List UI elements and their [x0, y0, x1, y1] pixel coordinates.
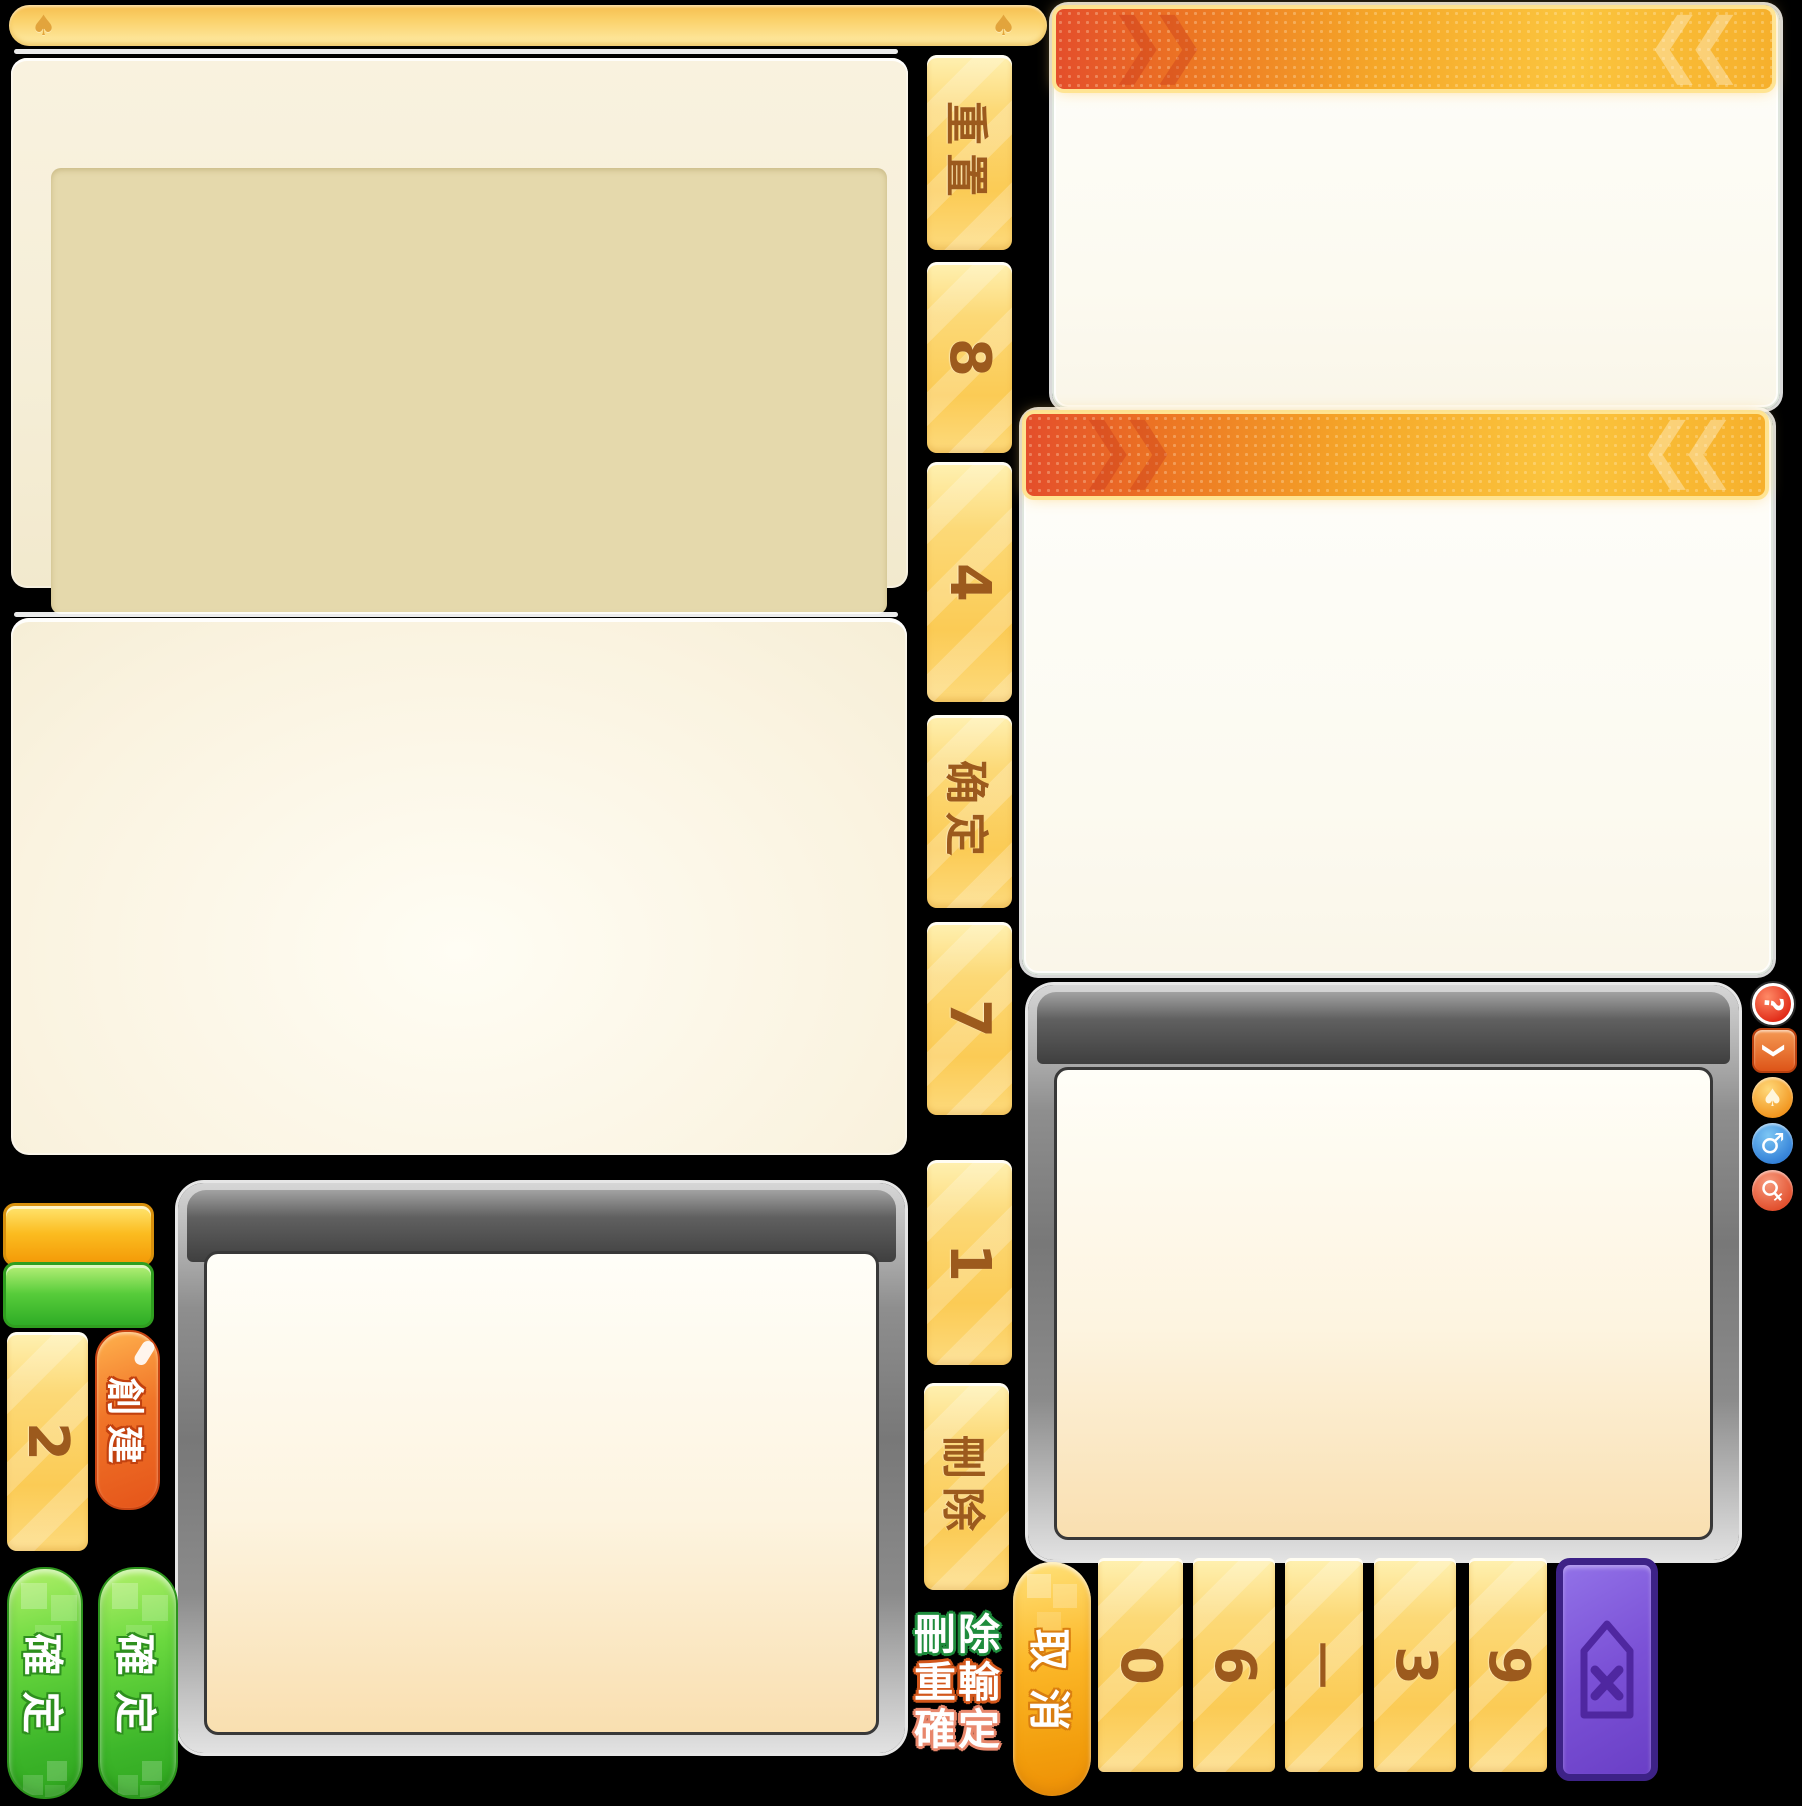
key-9-button[interactable]: 9	[1469, 1558, 1547, 1772]
confirm-button-b[interactable]: 確定	[98, 1567, 178, 1799]
key-3-button[interactable]: 3	[1374, 1558, 1456, 1772]
green-bar-button[interactable]	[3, 1262, 154, 1328]
key-8-button[interactable]: 8	[927, 262, 1012, 453]
delete-strip-button[interactable]: 刪除	[924, 1383, 1009, 1590]
dialog-header-top-right: ❯❯ ❮❮	[1056, 9, 1772, 89]
confirm-button-a[interactable]: 確定	[7, 1567, 83, 1799]
sprite-sheet-stage: ♠ ♠ 重置 8 4 确定 7 1 刪除 ❯❯ ❮❮ ❯❯ ❮❮	[0, 0, 1802, 1806]
create-button-label: 創建	[100, 1367, 155, 1473]
chevron-down-icon[interactable]: ❯	[1752, 1028, 1797, 1073]
confirm-b-label: 確定	[108, 1617, 169, 1749]
backspace-button[interactable]	[1556, 1558, 1658, 1781]
cancel-button[interactable]: 取消	[1013, 1562, 1091, 1796]
panel-top-highlight	[14, 612, 898, 617]
chevrons-left-icon: ❮❮	[1645, 9, 1726, 85]
confirm-strip-label: 确定	[938, 760, 1002, 864]
content-panel-top-inner	[51, 168, 887, 614]
confirm-strip-button[interactable]: 确定	[927, 715, 1012, 908]
help-icon[interactable]: ?	[1752, 983, 1794, 1025]
chevron-down-glyph: ❯	[1762, 1041, 1787, 1059]
key-0-label: 0	[1108, 1646, 1173, 1685]
delete-strip-label: 刪除	[935, 1435, 999, 1539]
orange-bar-button[interactable]	[3, 1203, 154, 1266]
key-9-label: 9	[1476, 1646, 1541, 1685]
dialog-header-mid-right: ❯❯ ❮❮	[1026, 414, 1765, 496]
female-glyph: ♀	[1754, 1171, 1791, 1209]
spade-glyph: ♠	[1762, 1084, 1784, 1112]
metal-panel-right-header	[1037, 992, 1730, 1064]
key-7-label: 7	[937, 999, 1002, 1038]
key-1-label: 1	[937, 1243, 1002, 1282]
male-glyph: ♂	[1760, 1127, 1785, 1160]
chevrons-right-icon: ❯❯	[1108, 9, 1189, 85]
key-2-label: 2	[15, 1422, 80, 1461]
confirm-a-label: 確定	[15, 1617, 76, 1749]
top-title-bar: ♠ ♠	[9, 5, 1047, 46]
cancel-button-label: 取消	[1022, 1610, 1083, 1748]
key-one-button[interactable]: 一	[1285, 1558, 1363, 1772]
spade-badge-icon[interactable]: ♠	[1752, 1077, 1793, 1118]
backspace-icon	[1576, 1618, 1638, 1722]
confirm-text: 確定	[913, 1696, 1003, 1757]
key-6-label: 6	[1202, 1646, 1267, 1685]
key-one-label: 一	[1291, 1642, 1357, 1688]
reset-button[interactable]: 重置	[927, 55, 1012, 250]
key-0-button[interactable]: 0	[1098, 1558, 1183, 1772]
key-2-button[interactable]: 2	[7, 1332, 88, 1551]
key-3-label: 3	[1383, 1646, 1448, 1685]
metal-panel-left-content	[204, 1251, 879, 1735]
reset-button-label: 重置	[938, 101, 1002, 205]
content-panel-top	[11, 58, 908, 588]
spade-icon: ♠	[31, 9, 56, 42]
create-button[interactable]: 創建	[95, 1330, 160, 1510]
panel-top-highlight	[14, 49, 898, 54]
key-4-label: 4	[937, 563, 1002, 602]
key-4-button[interactable]: 4	[927, 462, 1012, 702]
male-icon[interactable]: ♂	[1752, 1123, 1793, 1164]
metal-panel-left	[178, 1183, 905, 1753]
key-6-button[interactable]: 6	[1193, 1558, 1275, 1772]
key-7-button[interactable]: 7	[927, 922, 1012, 1115]
chevrons-left-icon: ❮❮	[1638, 414, 1719, 490]
key-1-button[interactable]: 1	[927, 1160, 1012, 1365]
chevrons-right-icon: ❯❯	[1078, 414, 1159, 490]
help-glyph: ?	[1757, 995, 1788, 1013]
female-icon[interactable]: ♀	[1752, 1170, 1793, 1211]
spade-icon: ♠	[991, 9, 1016, 42]
key-8-label: 8	[937, 338, 1002, 377]
content-panel-middle	[11, 618, 907, 1155]
metal-panel-right	[1028, 985, 1739, 1560]
metal-panel-right-content	[1054, 1067, 1713, 1540]
